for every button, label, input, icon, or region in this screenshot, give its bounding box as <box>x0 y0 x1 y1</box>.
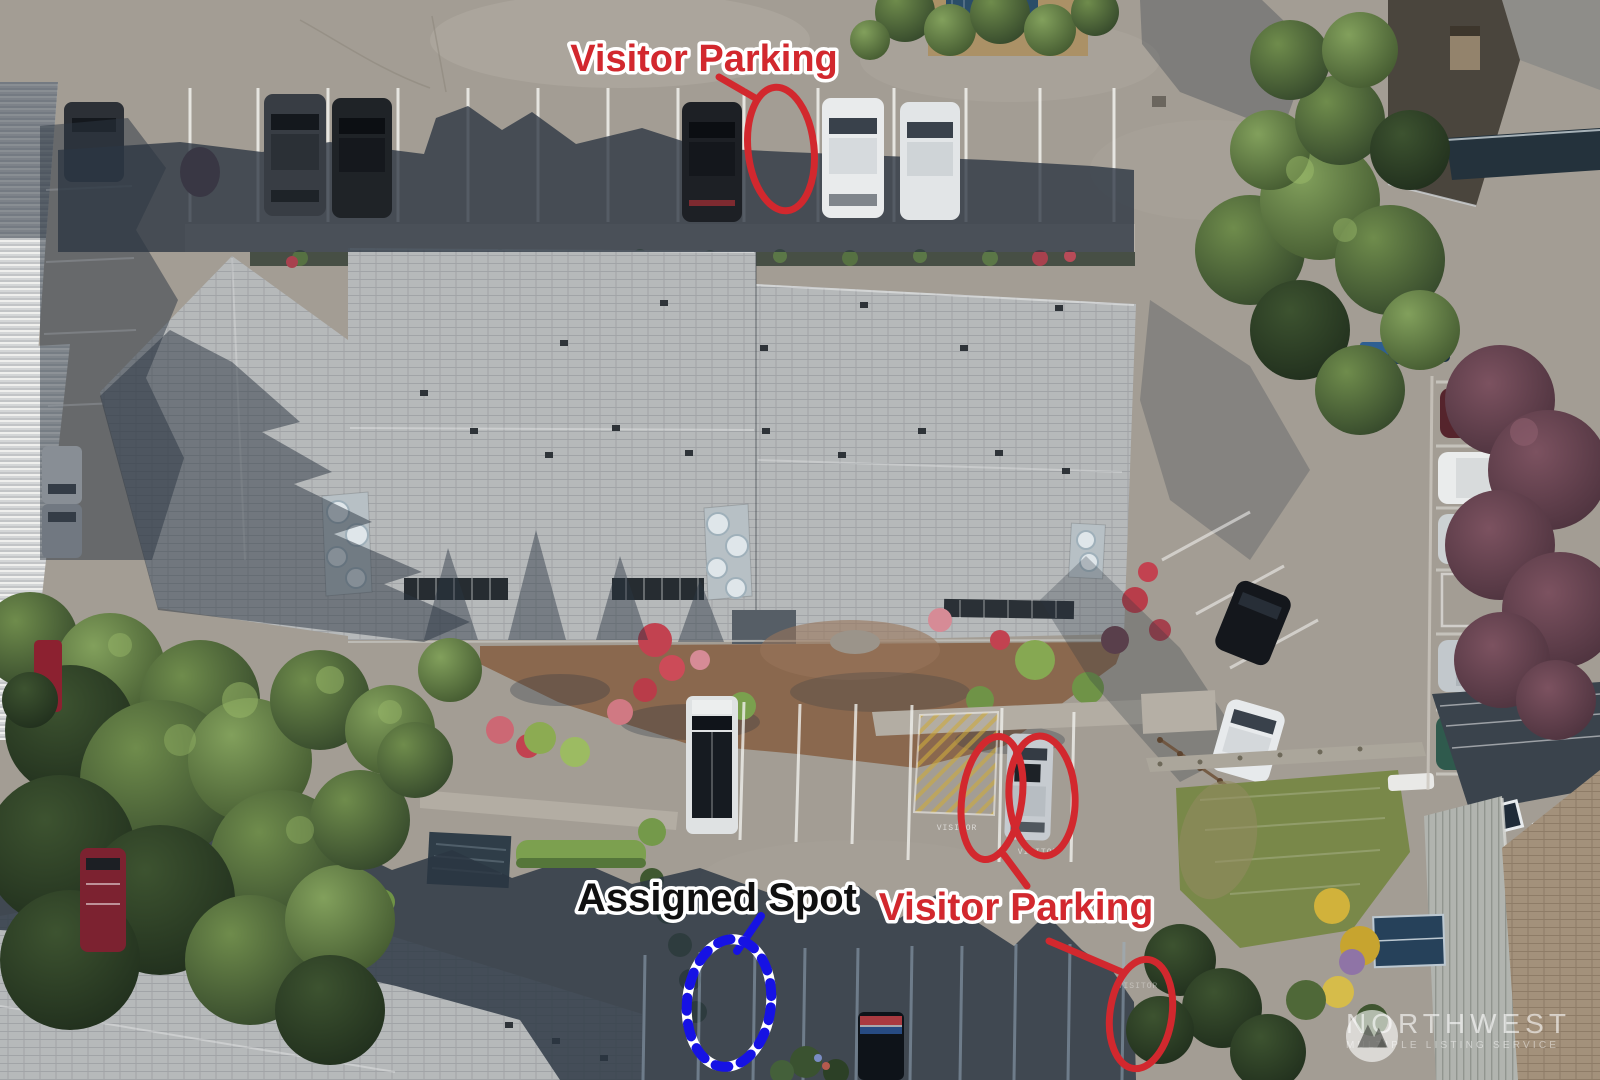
yellow-flower-bush <box>1314 888 1350 924</box>
pickup-truck <box>686 696 738 834</box>
aerial-photo: VISITOR VISITOR VISITOR Visitor Parking … <box>0 0 1600 1080</box>
visitor-parking-label-bottom: Visitor Parking <box>879 886 1154 929</box>
visitor-parking-label-top: Visitor Parking <box>570 38 838 80</box>
car-top-3-black <box>682 102 742 222</box>
landscape-rocks <box>830 630 880 654</box>
car-top-5-white <box>900 102 960 220</box>
car-top-2-black <box>332 98 392 218</box>
glass-balcony <box>1373 915 1445 967</box>
no-parking-hatch-zone <box>914 712 998 815</box>
car-top-1-dark <box>264 94 326 216</box>
visitor-stencil-1: VISITOR <box>937 824 978 833</box>
concrete-pad <box>1141 690 1217 734</box>
visitor-stencil-3: VISITOR <box>1118 982 1159 991</box>
assigned-spot-label: Assigned Spot <box>577 876 857 920</box>
covered-vehicle <box>858 1012 904 1080</box>
aerial-photo-scene: VISITOR VISITOR VISITOR Visitor Parking … <box>0 0 1600 1080</box>
purple-flower-bush <box>1339 949 1365 975</box>
car-top-4-white <box>822 98 884 218</box>
car-left-red <box>80 848 126 952</box>
rooftop-ac-units-middle <box>704 504 752 600</box>
